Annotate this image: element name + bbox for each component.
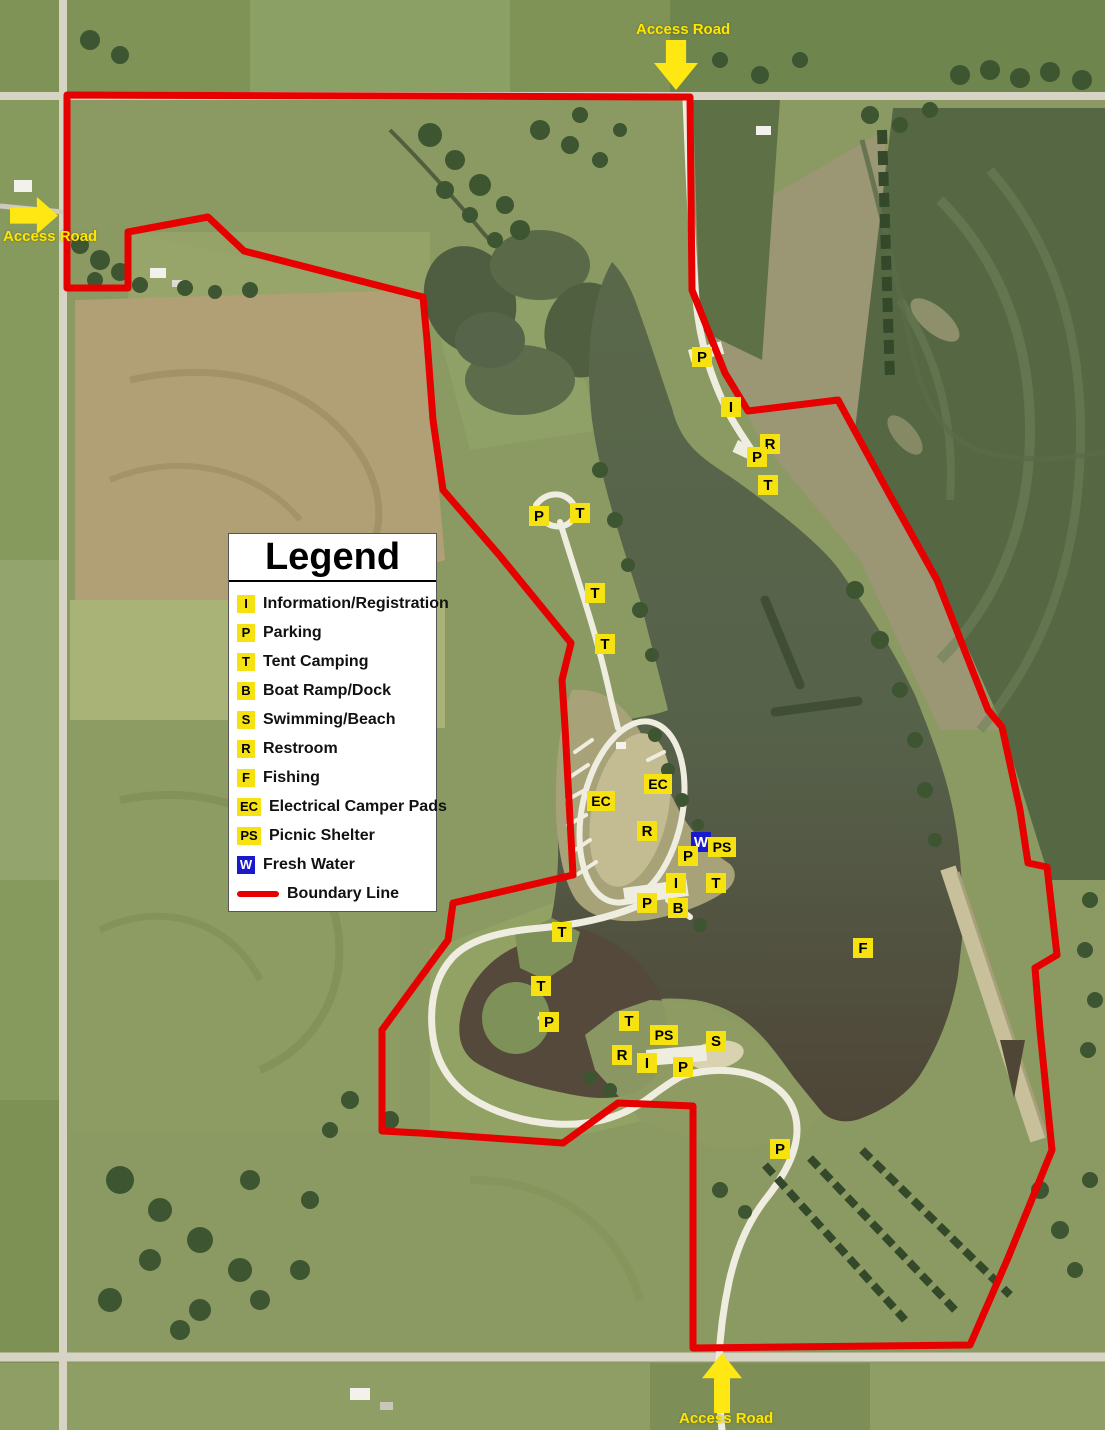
legend-item-label: Information/Registration <box>263 595 449 613</box>
access-road-label-left: Access Road <box>3 228 97 245</box>
map-marker-tent-camping: T <box>585 583 605 603</box>
map-marker-tent-camping: T <box>552 922 572 942</box>
legend-symbol-icon: S <box>237 711 255 729</box>
map-marker-tent-camping: T <box>595 634 615 654</box>
access-road-label-bottom: Access Road <box>679 1410 773 1427</box>
map-marker-information: I <box>666 873 686 893</box>
map-markers-layer: PIRPTPTTTECECRWPSPITPBTTPTPSSRIPFP <box>0 0 1105 1430</box>
map-marker-electrical-camper-pads: EC <box>587 791 615 811</box>
map-marker-parking: P <box>637 893 657 913</box>
map-marker-electrical-camper-pads: EC <box>644 774 672 794</box>
map-marker-picnic-shelter: PS <box>650 1025 678 1045</box>
legend-item: Boundary Line <box>237 879 436 908</box>
legend-symbol-icon: PS <box>237 827 261 845</box>
map-marker-parking: P <box>673 1057 693 1077</box>
map-marker-restroom: R <box>637 821 657 841</box>
legend-symbol-icon: T <box>237 653 255 671</box>
map-marker-picnic-shelter: PS <box>708 837 736 857</box>
map-marker-boat-ramp-dock: B <box>668 898 688 918</box>
map-marker-information: I <box>637 1053 657 1073</box>
map-marker-information: I <box>721 397 741 417</box>
legend-symbol-icon: I <box>237 595 255 613</box>
map-marker-parking: P <box>539 1012 559 1032</box>
map-marker-tent-camping: T <box>706 873 726 893</box>
legend-item-label: Picnic Shelter <box>269 827 375 845</box>
legend-item-label: Electrical Camper Pads <box>269 798 447 816</box>
access-road-label-top: Access Road <box>636 21 730 38</box>
map-marker-parking: P <box>529 506 549 526</box>
map-marker-tent-camping: T <box>531 976 551 996</box>
legend-symbol-icon: F <box>237 769 255 787</box>
legend-item: W Fresh Water <box>237 850 436 879</box>
map-marker-parking: P <box>692 347 712 367</box>
map-marker-restroom: R <box>612 1045 632 1065</box>
legend-item-label: Boundary Line <box>287 885 399 903</box>
legend-items: I Information/Registration P Parking T T… <box>229 582 436 908</box>
legend-item: EC Electrical Camper Pads <box>237 792 436 821</box>
legend-symbol-icon: W <box>237 856 255 874</box>
legend-title: Legend <box>229 534 436 582</box>
legend-item-label: Fresh Water <box>263 856 355 874</box>
legend-item-label: Swimming/Beach <box>263 711 395 729</box>
legend-symbol-icon: R <box>237 740 255 758</box>
legend-item: B Boat Ramp/Dock <box>237 676 436 705</box>
legend-item-label: Restroom <box>263 740 338 758</box>
legend-symbol-icon: P <box>237 624 255 642</box>
legend-item: F Fishing <box>237 763 436 792</box>
legend-item: S Swimming/Beach <box>237 705 436 734</box>
map-marker-parking: P <box>747 447 767 467</box>
map-marker-tent-camping: T <box>619 1011 639 1031</box>
legend-item-label: Parking <box>263 624 322 642</box>
legend-symbol-icon: EC <box>237 798 261 816</box>
legend-item: PS Picnic Shelter <box>237 821 436 850</box>
map-marker-fishing: F <box>853 938 873 958</box>
legend-item-label: Fishing <box>263 769 320 787</box>
map-marker-tent-camping: T <box>570 503 590 523</box>
map-marker-tent-camping: T <box>758 475 778 495</box>
map-marker-parking: P <box>770 1139 790 1159</box>
park-aerial-map: PIRPTPTTTECECRWPSPITPBTTPTPSSRIPFP Acces… <box>0 0 1105 1430</box>
legend-boundary-line-icon <box>237 891 279 897</box>
legend-item-label: Tent Camping <box>263 653 368 671</box>
legend-item: I Information/Registration <box>237 589 436 618</box>
legend-item-label: Boat Ramp/Dock <box>263 682 391 700</box>
legend-item: P Parking <box>237 618 436 647</box>
legend-item: T Tent Camping <box>237 647 436 676</box>
map-marker-swimming-beach: S <box>706 1031 726 1051</box>
legend-symbol-icon: B <box>237 682 255 700</box>
map-marker-parking: P <box>678 846 698 866</box>
legend-item: R Restroom <box>237 734 436 763</box>
legend-panel: Legend I Information/Registration P Park… <box>228 533 437 912</box>
